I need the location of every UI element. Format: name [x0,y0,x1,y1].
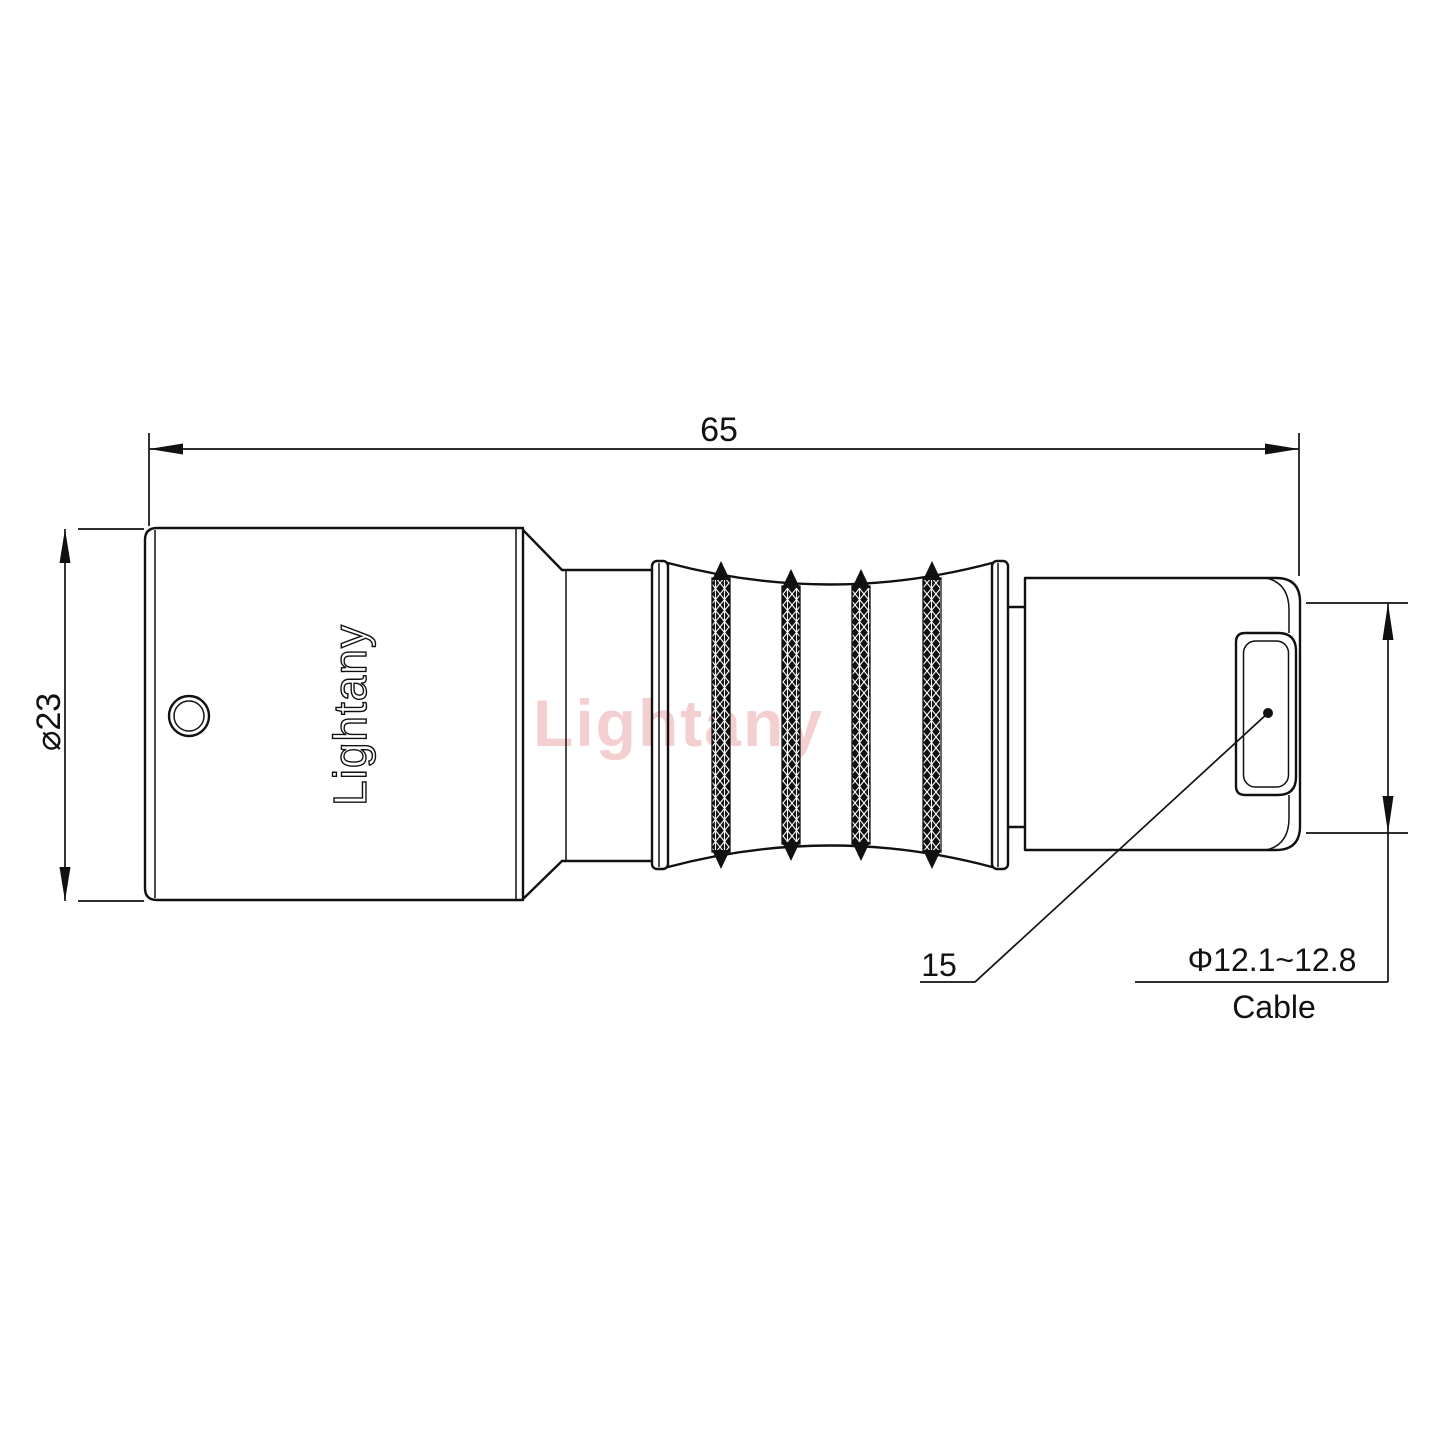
cable-label: Cable [1232,989,1316,1025]
arrow-right [1265,444,1299,455]
dimension-cable-diameter: Φ12.1~12.8 Cable [1135,603,1408,1025]
knurl-band-tip-bottom [852,842,870,861]
dimension-value-cable-diameter: Φ12.1~12.8 [1188,942,1357,978]
drawing-canvas: Lightany 65 ⌀23 Lightany [0,0,1440,1440]
knurl-band [782,569,800,861]
knurl-band-tip-bottom [782,842,800,861]
knurl-band-texture [852,586,870,844]
knurl-band-texture [712,578,730,852]
knurl-band [923,561,941,869]
knurl-band-tip-top [712,561,730,580]
dimension-overall-length: 65 [149,411,1299,576]
chamfer-bottom [523,861,562,899]
arrow-down [1383,796,1394,833]
watermark-text: Lightany [533,686,824,760]
arrow-up [60,529,71,563]
knurl-band-tip-top [782,569,800,588]
arrow-up [1383,603,1394,640]
knurl-band-texture [782,586,800,844]
connector-front-body: Lightany [145,528,523,900]
arrow-left [149,444,183,455]
connector-technical-drawing: Lightany 65 ⌀23 Lightany [0,0,1440,1440]
knurl-band [852,569,870,861]
knurl-band-tip-top [923,561,941,580]
locating-hole-inner [174,701,204,731]
grip-right-flange [992,561,1008,869]
dimension-value-overall-length: 65 [700,411,738,449]
knurl-band-tip-bottom [923,850,941,869]
dimension-value-body-diameter: ⌀23 [30,693,68,751]
chamfer-top [523,530,562,570]
knurl-band-tip-top [852,569,870,588]
rear-body-inner-corner-bottom [1266,795,1289,850]
brand-engraving-text: Lightany [324,624,376,806]
knurl-band-texture [923,578,941,852]
dimension-body-diameter: ⌀23 [30,529,144,901]
dimension-value-rear-section: 15 [921,947,957,983]
knurl-band-tip-bottom [712,850,730,869]
rear-body-inner-corner-top [1266,578,1289,633]
arrow-down [60,867,71,901]
locating-hole-outer [169,696,209,736]
connector-rear-body [1008,578,1300,850]
knurl-band [712,561,730,869]
